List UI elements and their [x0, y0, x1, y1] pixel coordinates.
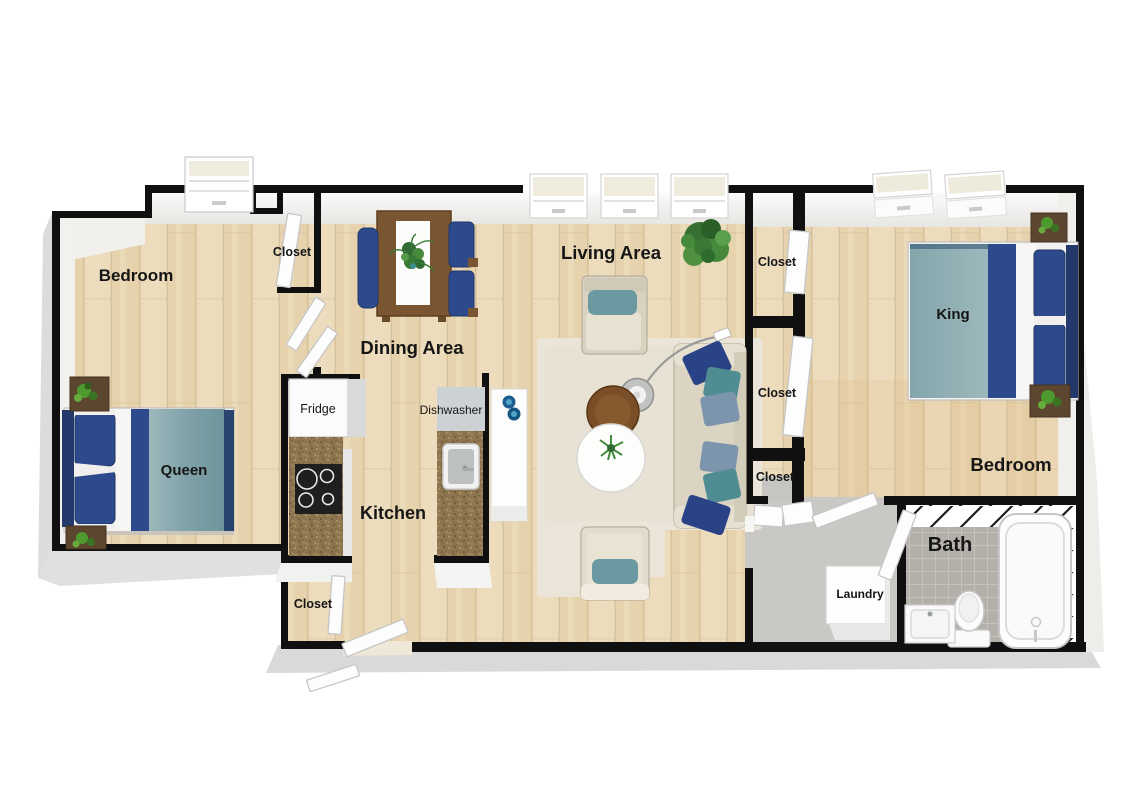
svg-text:Bath: Bath	[928, 534, 972, 556]
svg-text:Closet: Closet	[758, 386, 797, 400]
svg-text:Kitchen: Kitchen	[360, 503, 426, 523]
svg-text:Dining Area: Dining Area	[360, 337, 464, 358]
svg-text:Living Area: Living Area	[561, 242, 662, 263]
svg-text:Bedroom: Bedroom	[970, 454, 1051, 475]
svg-text:Dishwasher: Dishwasher	[420, 403, 483, 417]
svg-text:Closet: Closet	[294, 597, 333, 611]
svg-text:Closet: Closet	[758, 255, 797, 269]
svg-text:Fridge: Fridge	[300, 402, 335, 416]
svg-text:Closet: Closet	[756, 470, 795, 484]
svg-text:Bedroom: Bedroom	[99, 266, 174, 285]
svg-text:Closet: Closet	[273, 245, 312, 259]
svg-text:Queen: Queen	[161, 462, 208, 479]
svg-text:King: King	[936, 306, 969, 323]
svg-text:Laundry: Laundry	[836, 587, 884, 601]
